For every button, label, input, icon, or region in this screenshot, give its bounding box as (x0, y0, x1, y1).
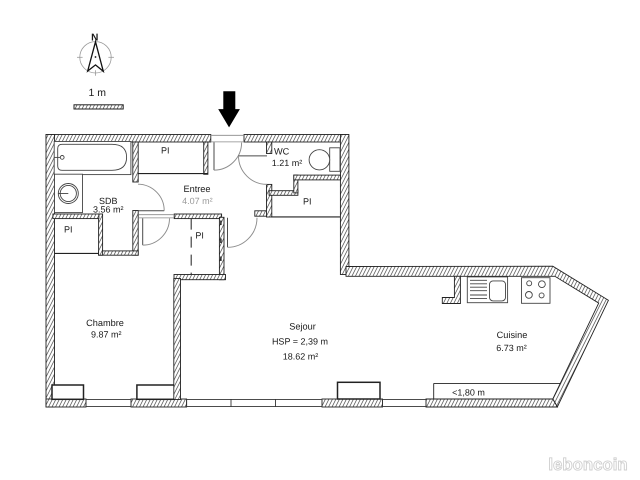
svg-text:<1,80 m: <1,80 m (452, 388, 485, 398)
svg-text:N: N (91, 32, 98, 43)
svg-text:WC: WC (274, 146, 290, 156)
svg-text:HSP = 2,39 m: HSP = 2,39 m (272, 336, 328, 346)
svg-text:6.73 m²: 6.73 m² (496, 343, 527, 353)
svg-text:PI: PI (161, 146, 170, 156)
svg-text:18.62 m²: 18.62 m² (283, 352, 319, 362)
svg-text:Cuisine: Cuisine (497, 330, 528, 340)
svg-text:PI: PI (303, 197, 312, 207)
svg-text:Chambre: Chambre (86, 318, 124, 328)
svg-text:PI: PI (64, 225, 73, 235)
svg-text:Sejour: Sejour (289, 322, 316, 332)
svg-text:9.87 m²: 9.87 m² (91, 330, 122, 340)
svg-text:leboncoin: leboncoin (548, 455, 627, 474)
svg-text:1.21 m²: 1.21 m² (272, 158, 303, 168)
svg-text:PI: PI (195, 230, 204, 240)
svg-text:Entree: Entree (183, 184, 210, 194)
svg-text:3.56 m²: 3.56 m² (93, 205, 124, 215)
svg-text:1 m: 1 m (89, 87, 107, 99)
svg-text:4.07 m²: 4.07 m² (182, 196, 213, 206)
